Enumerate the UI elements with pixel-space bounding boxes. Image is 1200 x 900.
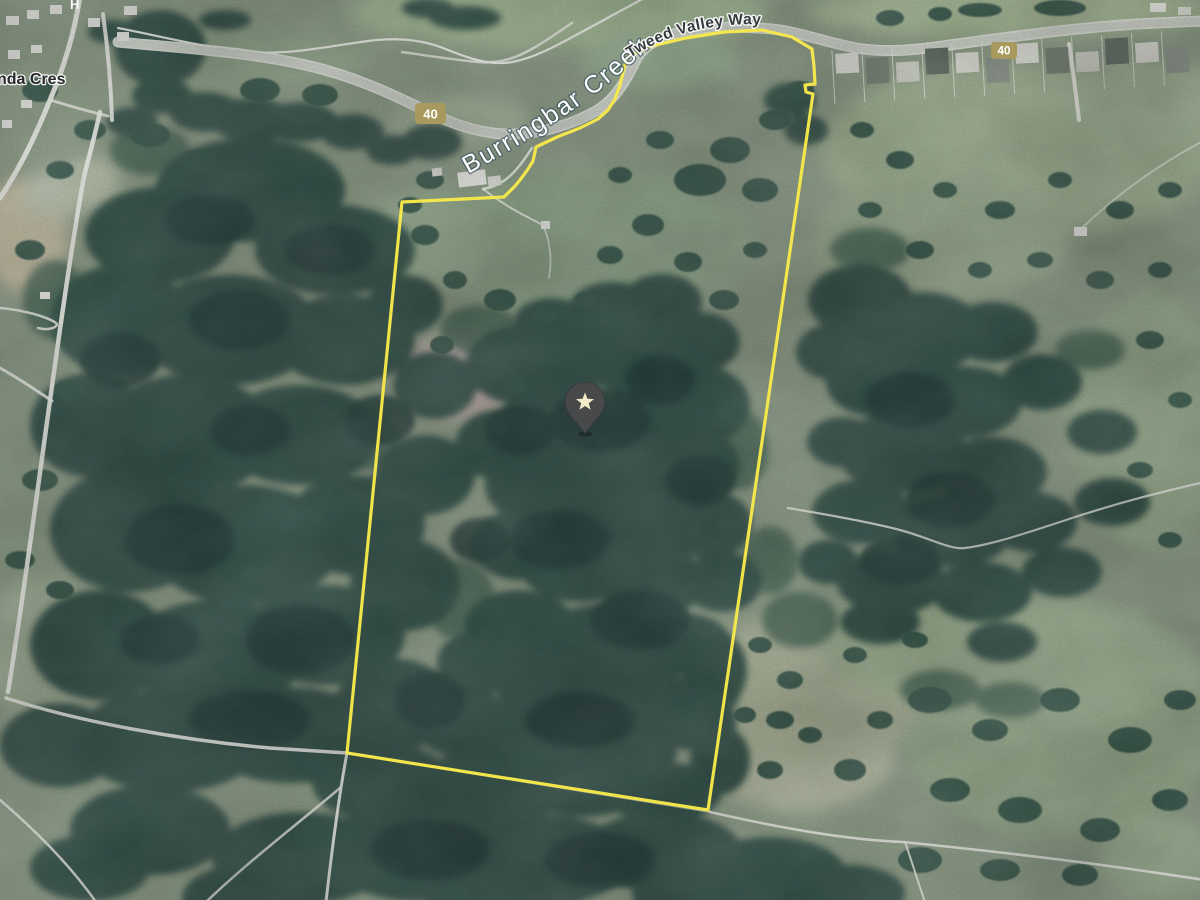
- cutoff-top-label: H: [70, 0, 79, 12]
- route-shield-40-west: 40: [415, 103, 446, 124]
- route-shield-number: 40: [998, 46, 1011, 58]
- image-grain: [0, 0, 1200, 900]
- street-label: nda Cres: [0, 71, 66, 88]
- route-shield-40-east: 40: [991, 42, 1017, 59]
- satellite-map-canvas[interactable]: Burringbar Creek Tweed Valley Way nda Cr…: [0, 0, 1200, 900]
- route-shield-number: 40: [423, 107, 437, 122]
